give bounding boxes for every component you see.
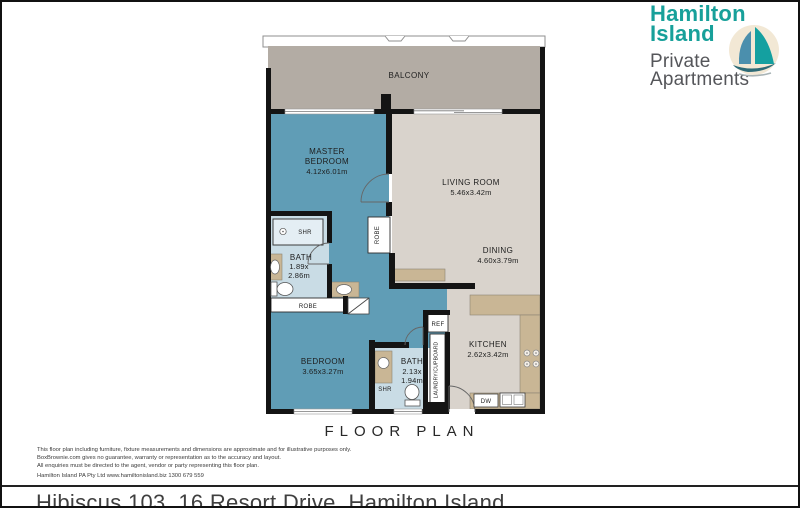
master-bedroom-dims: 4.12x6.01m (306, 167, 347, 176)
footer-divider (2, 485, 798, 487)
kitchen-dims: 2.62x3.42m (467, 350, 508, 359)
disclaimer: This floor plan including furniture, fix… (37, 447, 351, 481)
footer-address: Hibiscus 103, 16 Resort Drive, Hamilton … (36, 490, 505, 508)
laundry-label: LAUNDRY/CUPBOARD (434, 341, 440, 398)
sailboat-icon (726, 23, 782, 79)
bath-main-dims-2: 1.94m (401, 376, 423, 385)
dining-label: DINING (483, 246, 513, 255)
bath-ensuite-label: BATH (290, 253, 312, 262)
disclaimer-line-3: All enquiries must be directed to the ag… (37, 463, 351, 471)
living-room-label: LIVING ROOM (442, 178, 500, 187)
bedroom-dims: 3.65x3.27m (302, 367, 343, 376)
disclaimer-line-2: BoxBrownie.com gives no guarantee, warra… (37, 455, 351, 463)
bedroom-label: BEDROOM (301, 357, 345, 366)
dishwasher-label: DW (481, 399, 492, 405)
master-bedroom-label-1: MASTER (309, 147, 345, 156)
dining-dims: 4.60x3.79m (477, 256, 518, 265)
fridge-label: REF (432, 322, 445, 328)
bath-main-label: BATH (401, 357, 423, 366)
bath-ensuite-dims-2: 2.86m (288, 271, 310, 280)
living-room-dims: 5.46x3.42m (450, 188, 491, 197)
bath-main-dims-1: 2.13x (402, 367, 421, 376)
robe-hall-label: ROBE (299, 304, 317, 310)
balcony-railing (263, 36, 545, 47)
bath-ensuite-dims-1: 1.89x (289, 262, 308, 271)
disclaimer-line-4: Hamilton Island PA Pty Ltd www.hamiltoni… (37, 473, 351, 481)
robe-master-label: ROBE (375, 226, 381, 244)
page: BALCONY MASTER BEDROOM 4.12x6.01m LIVING… (0, 0, 800, 508)
kitchen-label: KITCHEN (469, 340, 507, 349)
balcony-label: BALCONY (388, 71, 429, 80)
plan-title: FLOOR PLAN (256, 423, 548, 440)
shower-main-label: SHR (378, 387, 392, 393)
master-bedroom-label-2: BEDROOM (305, 157, 349, 166)
disclaimer-line-1: This floor plan including furniture, fix… (37, 447, 351, 455)
shower-ensuite-label: SHR (298, 230, 312, 236)
